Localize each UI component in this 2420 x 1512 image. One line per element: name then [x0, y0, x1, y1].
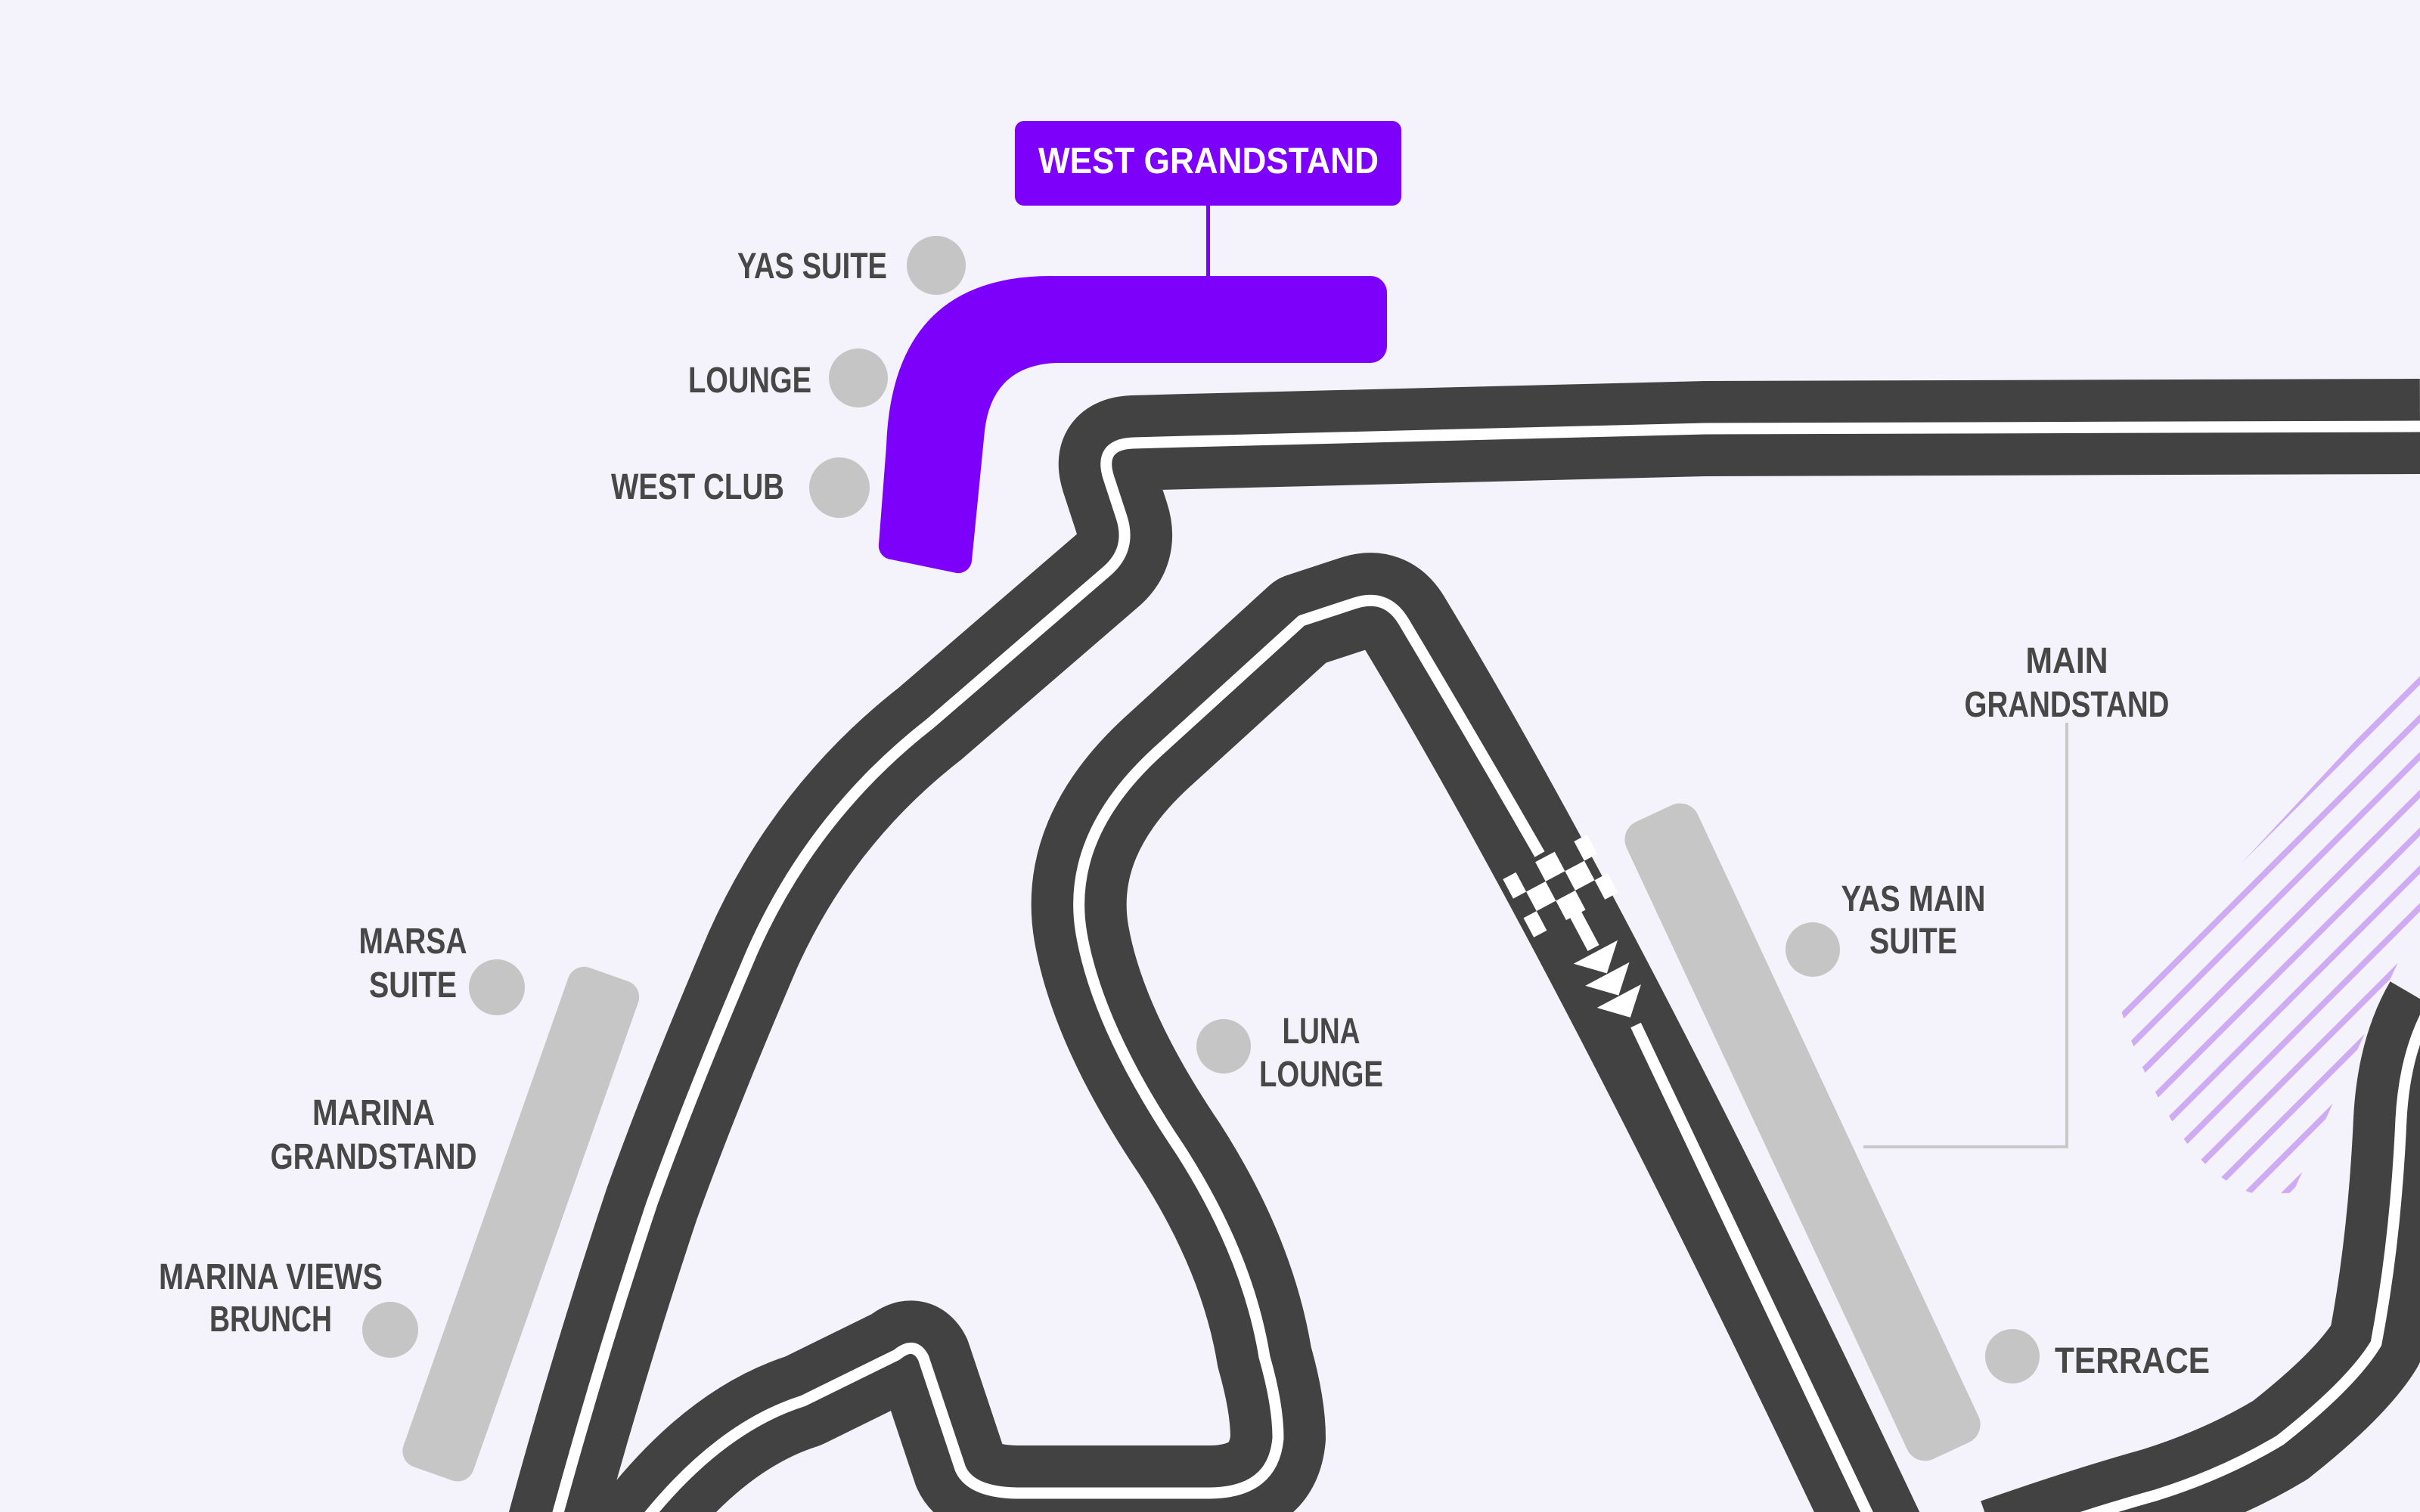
svg-text:WEST GRANDSTAND: WEST GRANDSTAND: [1038, 141, 1379, 181]
svg-text:LOUNGE: LOUNGE: [1259, 1055, 1383, 1095]
svg-text:YAS SUITE: YAS SUITE: [737, 246, 887, 287]
svg-text:GRANDSTAND: GRANDSTAND: [1965, 685, 2170, 725]
svg-text:LUNA: LUNA: [1283, 1012, 1360, 1052]
svg-text:MARINA VIEWS: MARINA VIEWS: [159, 1257, 383, 1297]
svg-text:MARSA: MARSA: [359, 922, 467, 962]
svg-text:MAIN: MAIN: [2026, 641, 2108, 681]
svg-text:YAS MAIN: YAS MAIN: [1841, 879, 1986, 919]
svg-text:SUITE: SUITE: [369, 965, 457, 1005]
svg-text:MARINA: MARINA: [312, 1093, 435, 1133]
svg-text:BRUNCH: BRUNCH: [209, 1300, 332, 1340]
svg-text:SUITE: SUITE: [1869, 922, 1957, 962]
svg-text:GRANDSTAND: GRANDSTAND: [271, 1137, 477, 1177]
svg-text:TERRACE: TERRACE: [2055, 1341, 2210, 1381]
svg-text:LOUNGE: LOUNGE: [688, 361, 811, 401]
svg-text:WEST CLUB: WEST CLUB: [611, 467, 784, 507]
